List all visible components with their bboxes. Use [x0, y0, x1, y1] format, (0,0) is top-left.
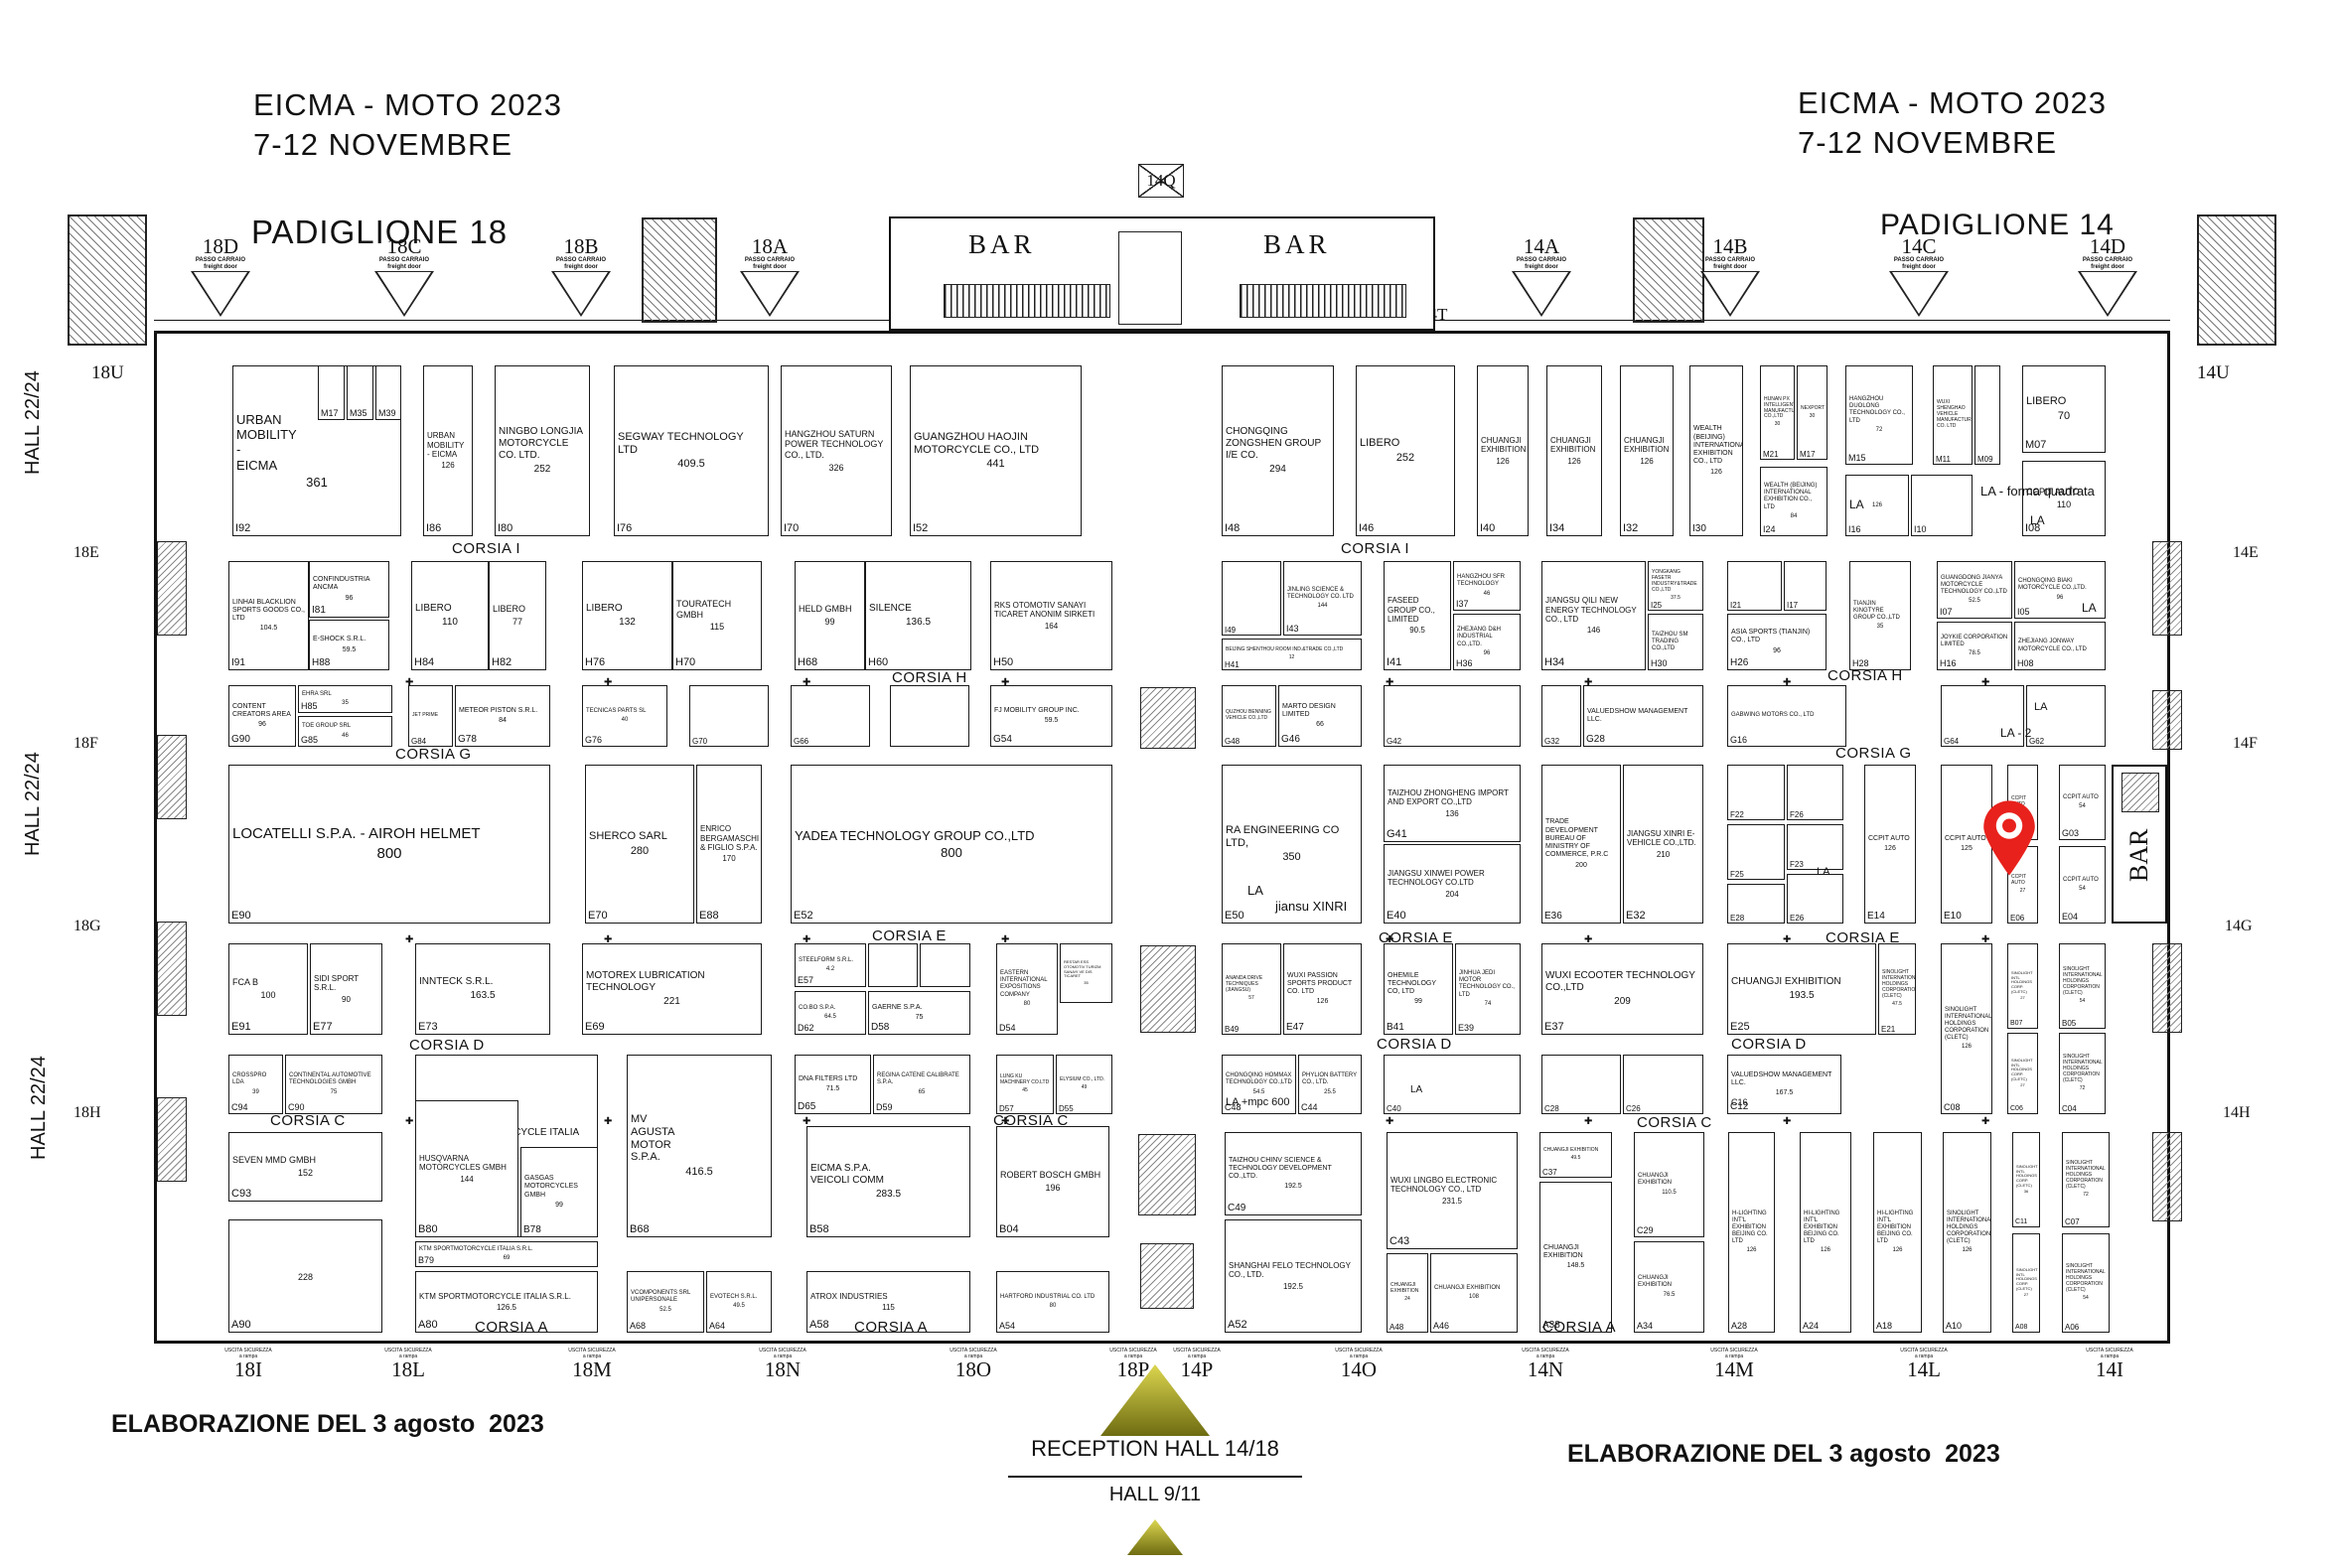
- booth-A52: SHANGHAI FELO TECHNOLOGY CO., LTD.192.5A…: [1225, 1219, 1362, 1333]
- corridor-label: CORSIA I: [1341, 540, 1409, 557]
- booth-E70: SHERCO SARL280E70: [585, 765, 694, 924]
- wall-cross-icon: ✚: [1001, 934, 1009, 945]
- booth-C11: SINOLIGHT INTL HOLDINGS CORP. (CLETC)36C…: [2012, 1132, 2040, 1227]
- booth-B68: MV AGUSTA MOTOR S.P.A.416.5B68: [627, 1055, 772, 1237]
- corridor-label: CORSIA H: [892, 669, 967, 686]
- booth-I46: LIBERO252I46: [1356, 365, 1455, 536]
- booth-E28: E28: [1727, 884, 1785, 924]
- booth-H30: TAIZHOU SM TRADING CO.,LTDH30: [1648, 614, 1703, 670]
- wall-cross-icon: ✚: [1386, 934, 1393, 945]
- booth-H60: SILENCE136.5H60: [865, 561, 971, 670]
- annotation: LA: [2082, 602, 2097, 615]
- booth-A10: SINOLIGHT INTERNATIONAL HOLDINGS CORPORA…: [1943, 1132, 1991, 1333]
- booth-I76: SEGWAY TECHNOLOGY LTD409.5I76: [614, 365, 769, 536]
- booth-I34: CHUANGJI EXHIBITION126I34: [1546, 365, 1602, 536]
- booth-I24: WEALTH (BEIJING) INTERNATIONAL EXHIBITIO…: [1760, 467, 1827, 536]
- wall-cross-icon: ✚: [803, 1116, 810, 1127]
- booth-H26: ASIA SPORTS (TIANJIN) CO., LTD96H26: [1727, 614, 1827, 670]
- booth-B78: GASGAS MOTORCYCLES GMBH99B78: [520, 1147, 598, 1237]
- service-structure-icon: [2152, 1132, 2182, 1221]
- booth-E14: CCPIT AUTO126E14: [1864, 765, 1916, 924]
- booth-I52: GUANGZHOU HAOJIN MOTORCYCLE CO., LTD441I…: [910, 365, 1082, 536]
- booth-E91: FCA B100E91: [228, 943, 308, 1035]
- booth-I48: CHONGQING ZONGSHEN GROUP I/E CO.294I48: [1222, 365, 1334, 536]
- annotation: C16: [1731, 1098, 1748, 1108]
- booth-I70: HANGZHOU SATURN POWER TECHNOLOGY CO., LT…: [781, 365, 892, 536]
- corridor-label: CORSIA D: [1731, 1036, 1807, 1053]
- booth-E88: ENRICO BERGAMASCHI & FIGLIO S.P.A.170E88: [696, 765, 762, 924]
- booth-I07: GUANGDONG JIANYA MOTORCYCLE TECHNOLOGY C…: [1937, 561, 2012, 619]
- booth-E69: MOTOREX LUBRICATION TECHNOLOGY221E69: [582, 943, 762, 1035]
- booth-D54: EASTERN INTERNATIONAL EXPOSITIONS COMPAN…: [996, 943, 1058, 1035]
- booth-C37: CHUANGJI EXHIBITION49.5C37: [1539, 1132, 1612, 1178]
- booth-C29: CHUANGJI EXHIBITION110.5C29: [1634, 1132, 1704, 1237]
- booth-M17: NEXPORT30M17: [1797, 365, 1827, 460]
- corridor-label: CORSIA I: [452, 540, 520, 557]
- booth-I21: I21: [1727, 561, 1782, 611]
- wall-cross-icon: ✚: [1584, 934, 1592, 945]
- booth-M15: HANGZHOU DUOLONG TECHNOLOGY CO., LTD72M1…: [1845, 365, 1913, 465]
- booth-G46: MARTO DESIGN LIMITED66G46: [1278, 685, 1362, 747]
- booth-A28: H-LIGHTING INT'L EXHIBITION BEIJING CO. …: [1728, 1132, 1775, 1333]
- booth-G16: GABWING MOTORS CO., LTDG16: [1727, 685, 1846, 747]
- annotation: LA: [1849, 499, 1864, 511]
- booth-I37: HANGZHOU SFR TECHNOLOGY46I37: [1453, 561, 1521, 611]
- booth-A46: CHUANGJI EXHIBITION108A46: [1430, 1253, 1518, 1333]
- booth-E37: WUXI ECOOTER TECHNOLOGY CO.,LTD209E37: [1541, 943, 1703, 1035]
- edge-label: 14U: [2197, 363, 2230, 384]
- bar-service-room: [1118, 231, 1182, 325]
- annotation: LA: [2030, 514, 2045, 527]
- booth-E21: SINOLIGHT INTERNATIONAL HOLDINGS CORPORA…: [1878, 943, 1916, 1035]
- wall-cross-icon: ✚: [1386, 677, 1393, 688]
- booth-A34: CHUANGJI EXHIBITION76.5A34: [1634, 1241, 1704, 1333]
- booth-G66: G66: [791, 685, 870, 747]
- edge-label: HALL 22/24: [22, 752, 44, 856]
- booth-H85: EHRA SRL35H85: [298, 685, 392, 713]
- wall-cross-icon: ✚: [803, 677, 810, 688]
- booth-M11: WUXI SHENGHAO VEHICLE MANUFACTURING CO. …: [1933, 365, 1973, 465]
- booth-A08: SINOLIGHT INTL HOLDINGS CORP. (CLETC)27A…: [2012, 1233, 2040, 1333]
- annotation: LA - forma quadrata: [1980, 485, 2095, 499]
- service-structure-icon: [2152, 943, 2182, 1033]
- booth-I30: WEALTH (BEIJING) INTERNATIONAL EXHIBITIO…: [1689, 365, 1743, 536]
- wall-cross-icon: ✚: [1584, 677, 1592, 688]
- service-structure-icon: [157, 922, 187, 1016]
- gate-18D[interactable]: 18DPASSO CARRAIO freight door: [156, 236, 285, 317]
- booth-G76: TECNICAS PARTS SL40G76: [582, 685, 667, 747]
- stair-tower-icon: [2197, 214, 2276, 346]
- gate-18L[interactable]: USCITA SICUREZZA a rampa18L: [384, 1349, 431, 1380]
- gate-18I[interactable]: USCITA SICUREZZA a rampa18I: [224, 1349, 271, 1380]
- booth-E25: CHUANGJI EXHIBITION193.5E25: [1727, 943, 1876, 1035]
- booth-G32: G32: [1541, 685, 1581, 747]
- booth-H08: ZHEJIANG JONWAY MOTORCYCLE CO., LTDH08: [2014, 622, 2106, 670]
- booth-A38: CHUANGJI EXHIBITION148.5A38: [1539, 1182, 1612, 1333]
- service-structure-icon: [1138, 1134, 1196, 1215]
- booth-E26: E26: [1787, 874, 1843, 924]
- booth-G03: CCPIT AUTO54G03: [2059, 765, 2106, 840]
- wall-cross-icon: ✚: [1783, 1116, 1791, 1127]
- booth-G41: TAIZHOU ZHONGHENG IMPORT AND EXPORT CO.,…: [1384, 765, 1521, 842]
- booth-G90: CONTENT CREATORS AREA96G90: [228, 685, 296, 747]
- wall-cross-icon: ✚: [1981, 934, 1989, 945]
- annotation: LA - 2: [2000, 727, 2031, 740]
- edge-label: 14F: [2233, 735, 2258, 753]
- wall-cross-icon: ✚: [405, 677, 413, 688]
- annotation: LA: [1410, 1084, 1422, 1095]
- booth-I40: CHUANGJI EXHIBITION126I40: [1477, 365, 1529, 536]
- service-structure-icon: [1140, 1243, 1194, 1309]
- wall-cross-icon: ✚: [1386, 1116, 1393, 1127]
- booth-E32: JIANGSU XINRI E-VEHICLE CO.,LTD.210E32: [1623, 765, 1703, 924]
- booth-B05: SINOLIGHT INTERNATIONAL HOLDINGS CORPORA…: [2059, 943, 2106, 1029]
- corridor-label: CORSIA H: [1827, 667, 1903, 684]
- annotation: LA: [2034, 701, 2047, 713]
- booth-F26: F26: [1787, 765, 1843, 820]
- booth-C06: SINOLIGHT INTL HOLDINGS CORP. (CLETC)27C…: [2007, 1033, 2038, 1114]
- booth-H68: HELD GMBH99H68: [795, 561, 865, 670]
- booth-G84: JET PRIMEG84: [408, 685, 453, 747]
- gate-14Q: 14Q: [1138, 164, 1184, 198]
- footer-left: ELABORAZIONE DEL 3 agosto 2023: [111, 1410, 544, 1439]
- booth-G42: G42: [1384, 685, 1521, 747]
- booth-C90: CONTINENTAL AUTOMOTIVE TECHNOLOGIES GMBH…: [285, 1055, 382, 1114]
- booth-I81: CONFINDUSTRIA ANCMA96I81: [309, 561, 389, 618]
- edge-label: 18H: [73, 1104, 101, 1122]
- gate-14I[interactable]: USCITA SICUREZZA a rampa14I: [2086, 1349, 2132, 1380]
- corridor-label: CORSIA C: [1637, 1114, 1712, 1131]
- corridor-label: CORSIA E: [1826, 929, 1900, 946]
- gate-18M[interactable]: USCITA SICUREZZA a rampa18M: [568, 1349, 615, 1380]
- booth-H34: JIANGSU QILI NEW ENERGY TECHNOLOGY CO., …: [1541, 561, 1646, 670]
- gate-18B[interactable]: 18BPASSO CARRAIO freight door: [516, 236, 646, 317]
- edge-label: 14E: [2233, 544, 2259, 562]
- booth-A68: VCOMPONENTS SRL UNIPERSONALE52.5A68: [627, 1271, 704, 1333]
- booth-F23: F23: [1787, 824, 1843, 870]
- location-pin-icon[interactable]: [1981, 799, 2037, 882]
- booth-F25: F25: [1727, 824, 1785, 880]
- gate-14A[interactable]: 14APASSO CARRAIO freight door: [1477, 236, 1606, 317]
- booth-M35: M35: [347, 365, 373, 420]
- footer-right: ELABORAZIONE DEL 3 agosto 2023: [1567, 1440, 2000, 1469]
- booth-C04: SINOLIGHT INTERNATIONAL HOLDINGS CORPORA…: [2059, 1033, 2106, 1114]
- booth-E39: JINHUA JEDI MOTOR TECHNOLOGY CO., LTD74E…: [1455, 943, 1521, 1035]
- booth-G62: G62: [2026, 685, 2106, 747]
- wall-cross-icon: ✚: [1981, 1116, 1989, 1127]
- corridor-label: CORSIA A: [854, 1319, 928, 1336]
- wall-cross-icon: ✚: [405, 1116, 413, 1127]
- booth-E52: YADEA TECHNOLOGY GROUP CO.,LTD800E52: [791, 765, 1112, 924]
- booth-B49: ANANDA DRIVE TECHNIQUES (JIANGSU)57B49: [1222, 943, 1281, 1035]
- corridor-label: CORSIA A: [475, 1319, 548, 1336]
- wall-cross-icon: ✚: [1001, 677, 1009, 688]
- booth-I80: NINGBO LONGJIA MOTORCYCLE CO. LTD.252I80: [495, 365, 590, 536]
- booth-I49: I49: [1222, 561, 1281, 636]
- booth: [920, 943, 970, 987]
- gate-14N[interactable]: USCITA SICUREZZA a rampa14N: [1522, 1349, 1568, 1380]
- booth-F22: F22: [1727, 765, 1785, 820]
- corridor-label: CORSIA E: [872, 927, 947, 944]
- booth-E73: INNTECK S.R.L.163.5E73: [415, 943, 550, 1035]
- booth-H82: LIBERO77H82: [489, 561, 546, 670]
- booth-A54: HARTFORD INDUSTRIAL CO. LTD80A54: [996, 1271, 1109, 1333]
- service-structure-icon: [157, 1097, 187, 1182]
- corridor-label: CORSIA G: [1835, 745, 1912, 762]
- edge-label: HALL 22/24: [22, 370, 44, 475]
- booth-H76: LIBERO132H76: [582, 561, 672, 670]
- wall-cross-icon: ✚: [604, 677, 612, 688]
- booth-D65: DNA FILTERS LTD71.5D65: [795, 1055, 871, 1114]
- floor-plan: EICMA - MOTO 2023 7-12 NOVEMBRE EICMA - …: [0, 0, 2339, 1568]
- bar-label: BAR: [968, 230, 1036, 260]
- booth-E77: SIDI SPORT S.R.L.90E77: [310, 943, 382, 1035]
- escalator-icon: [944, 284, 1110, 318]
- booth-G54: FJ MOBILITY GROUP INC.59.5G54: [990, 685, 1112, 747]
- booth-E90: LOCATELLI S.P.A. - AIROH HELMET800E90: [228, 765, 550, 924]
- wall-cross-icon: ✚: [1981, 677, 1989, 688]
- booth-I32: CHUANGJI EXHIBITION126I32: [1620, 365, 1674, 536]
- gate-18O[interactable]: USCITA SICUREZZA a rampa18O: [950, 1349, 996, 1380]
- service-structure-icon: [1140, 945, 1196, 1033]
- escalator-icon: [1240, 284, 1406, 318]
- annotation: LA: [1247, 884, 1263, 898]
- wall-cross-icon: ✚: [803, 934, 810, 945]
- service-structure-icon: [157, 735, 187, 819]
- gate-14M[interactable]: USCITA SICUREZZA a rampa14M: [1710, 1349, 1757, 1380]
- booth-I43: JINLING SCIENCE & TECHNOLOGY CO. LTD144I…: [1283, 561, 1362, 636]
- corridor-label: CORSIA D: [409, 1037, 485, 1054]
- booth-E40: JIANGSU XINWEI POWER TECHNOLOGY CO.LTD20…: [1384, 844, 1521, 924]
- service-structure-icon: [157, 541, 187, 636]
- annotation: LA +mpc 600: [1226, 1096, 1290, 1108]
- edge-label: 18F: [73, 735, 98, 753]
- booth-I86: URBAN MOBILITY - EICMA126I86: [423, 365, 473, 536]
- booth-A18: HI-LIGHTING INT'L EXHIBITION BEIJING CO.…: [1873, 1132, 1922, 1333]
- booth-M17: M17: [318, 365, 345, 420]
- edge-label: 18E: [73, 544, 99, 562]
- service-structure-icon: [2152, 541, 2182, 636]
- booth-C93: SEVEN MMD GMBH152C93: [228, 1132, 382, 1202]
- gate-18N[interactable]: USCITA SICUREZZA a rampa18N: [759, 1349, 805, 1380]
- annotation: LA: [1817, 866, 1829, 878]
- service-structure-icon: [2152, 690, 2182, 750]
- gate-14B[interactable]: 14BPASSO CARRAIO freight door: [1666, 236, 1795, 317]
- gate-18A[interactable]: 18APASSO CARRAIO freight door: [705, 236, 834, 317]
- reception-title: RECEPTION HALL 14/18: [1031, 1436, 1279, 1462]
- booth-H50: RKS OTOMOTIV SANAYI TICARET ANONIM SIRKE…: [990, 561, 1112, 670]
- booth-D58: GAERNE S.P.A.75D58: [868, 991, 970, 1035]
- gate-18C[interactable]: 18CPASSO CARRAIO freight door: [340, 236, 469, 317]
- booth-E36: TRADE DEVELOPMENT BUREAU OF MINISTRY OF …: [1541, 765, 1621, 924]
- booth: [890, 685, 969, 747]
- wall-cross-icon: ✚: [1001, 1116, 1009, 1127]
- booth-H84: LIBERO110H84: [411, 561, 489, 670]
- stair-tower-icon: [68, 214, 147, 346]
- reception-divider: [1008, 1476, 1302, 1478]
- booth-H28: TIANJIN KINGTYRE GROUP CO.,LTD35H28: [1849, 561, 1911, 670]
- booth-A64: EVOTECH S.R.L.49.5A64: [706, 1271, 772, 1333]
- wall-cross-icon: ✚: [1783, 934, 1791, 945]
- edge-label: 18G: [73, 918, 101, 935]
- booth-A24: HI-LIGHTING INT'L EXHIBITION BEIJING CO.…: [1800, 1132, 1851, 1333]
- booth-H36: ZHEJIANG D&H INDUSTRIAL CO.,LTD.96H36: [1453, 614, 1521, 670]
- booth-C08: SINOLIGHT INTERNATIONAL HOLDINGS CORPORA…: [1941, 943, 1992, 1114]
- gate-14D[interactable]: 14DPASSO CARRAIO freight door: [2043, 236, 2172, 317]
- plan-layer: URBAN MOBILITY - EICMA361I92M17M35M39URB…: [0, 0, 2339, 1568]
- wall-cross-icon: ✚: [604, 934, 612, 945]
- booth-H41: BEIJING SHENTHOU ROOM IND.&TRADE CO.,LTD…: [1222, 639, 1362, 670]
- booth-C07: SINOLIGHT INTERNATIONAL HOLDINGS CORPORA…: [2062, 1132, 2110, 1227]
- wall-cross-icon: ✚: [1584, 1116, 1592, 1127]
- booth-A90: 228A90: [228, 1219, 382, 1333]
- booth-A48: CHUANGJI EXHIBITION24A48: [1387, 1253, 1428, 1333]
- booth-D57: LUNG KU MACHINERY CO.LTD45D57: [996, 1055, 1054, 1114]
- booth-G28: VALUEDSHOW MANAGEMENT LLC.G28: [1583, 685, 1703, 747]
- wall-cross-icon: ✚: [1783, 677, 1791, 688]
- corridor-label: CORSIA G: [395, 746, 472, 763]
- booth: [868, 943, 918, 987]
- booth-C94: CROSSPRO LDA39C94: [228, 1055, 283, 1114]
- booth-B07: SINOLIGHT INTL HOLDINGS CORP. (CLETC)27B…: [2007, 943, 2038, 1029]
- booth-I10: I10: [1911, 475, 1973, 536]
- edge-label: 18U: [91, 363, 124, 384]
- booth: RESTAR ESS OTOMOTIV TURIZM SANAYI VE DIS…: [1060, 943, 1112, 1003]
- gate-14L[interactable]: USCITA SICUREZZA a rampa14L: [1900, 1349, 1947, 1380]
- annotation: jiansu XINRI: [1275, 900, 1347, 914]
- booth-H16: JOYKIE CORPORATION LIMITED78.5H16: [1937, 622, 2012, 670]
- booth-M39: M39: [375, 365, 401, 420]
- wall-cross-icon: ✚: [604, 1116, 612, 1127]
- booth-G48: QUZHOU BENNING VEHICLE CO.,LTDG48: [1222, 685, 1276, 747]
- booth-G78: METEOR PISTON S.R.L.84G78: [455, 685, 550, 747]
- booth-C26: C26: [1623, 1055, 1703, 1114]
- booth-C44: PHYLION BATTERY CO., LTD.25.5C44: [1298, 1055, 1362, 1114]
- booth-G70: G70: [689, 685, 769, 747]
- booth-C43: WUXI LINGBO ELECTRONIC TECHNOLOGY CO., L…: [1387, 1132, 1518, 1249]
- edge-label: 14H: [2223, 1104, 2251, 1122]
- booth-H88: E-SHOCK S.R.L.59.5H88: [309, 620, 389, 670]
- booth-G85: TOE GROUP SRL46G85: [298, 716, 392, 747]
- booth-E47: WUXI PASSION SPORTS PRODUCT CO. LTD126E4…: [1283, 943, 1362, 1035]
- booth-I91: LINHAI BLACKLION SPORTS GOODS CO., LTD10…: [228, 561, 309, 670]
- booth-B79: KTM SPORTMOTORCYCLE ITALIA S.R.L.69B79: [415, 1241, 598, 1267]
- booth-C28: C28: [1541, 1055, 1621, 1114]
- booth-C40: C40: [1384, 1055, 1521, 1114]
- booth-M21: HUNAN PX INTELLIGENT MANUFACTURING CO.,L…: [1760, 365, 1795, 460]
- gate-14P[interactable]: USCITA SICUREZZA a rampa14P: [1173, 1349, 1220, 1380]
- booth-B58: EICMA S.P.A. VEICOLI COMM283.5B58: [806, 1126, 970, 1237]
- booth-B80: HUSQVARNA MOTORCYCLES GMBH144B80: [415, 1100, 518, 1237]
- edge-label: 14G: [2225, 918, 2253, 935]
- booth-B41: OHEMILE TECHNOLOGY CO, LTD99B41: [1384, 943, 1453, 1035]
- booth-E04: CCPIT AUTO54E04: [2059, 846, 2106, 924]
- booth-M07: LIBERO70M07: [2022, 365, 2106, 453]
- wall-cross-icon: ✚: [405, 934, 413, 945]
- bar-label: BAR: [1263, 230, 1331, 260]
- booth-M09: M09: [1974, 365, 2000, 465]
- gate-14O[interactable]: USCITA SICUREZZA a rampa14O: [1335, 1349, 1382, 1380]
- booth-I41: FASEED GROUP CO., LIMITED90.5I41: [1384, 561, 1451, 670]
- booth-E57: STEELFORM S.R.L.4.2E57: [795, 943, 866, 987]
- corridor-label: CORSIA A: [1542, 1319, 1616, 1336]
- booth-A06: SINOLIGHT INTERNATIONAL HOLDINGS CORPORA…: [2062, 1233, 2110, 1333]
- booth-I17: I17: [1784, 561, 1827, 611]
- booth-B04: ROBERT BOSCH GMBH196B04: [996, 1126, 1109, 1237]
- edge-label: HALL 22/24: [28, 1056, 50, 1160]
- booth-D59: REGINA CATENE CALIBRATE S.P.A.65D59: [873, 1055, 970, 1114]
- booth-I25: YONGKANG FASETR INDUSTRY&TRADE CO.,LTD37…: [1648, 561, 1703, 611]
- corridor-label: CORSIA D: [1377, 1036, 1452, 1053]
- booth-H70: TOURATECH GMBH115H70: [672, 561, 762, 670]
- booth-D62: CO.BO S.P.A.64.5D62: [795, 991, 866, 1035]
- booth-D55: ELYSIUM CO., LTD.49D55: [1056, 1055, 1112, 1114]
- booth-C49: TAIZHOU CHINV SCIENCE & TECHNOLOGY DEVEL…: [1225, 1132, 1362, 1215]
- gate-14C[interactable]: 14CPASSO CARRAIO freight door: [1854, 236, 1983, 317]
- corridor-label: CORSIA C: [270, 1112, 346, 1129]
- service-structure-icon: [1140, 687, 1196, 749]
- bar-side-label: BAR: [2125, 829, 2154, 882]
- reception-hall-label: HALL 9/11: [1109, 1484, 1201, 1506]
